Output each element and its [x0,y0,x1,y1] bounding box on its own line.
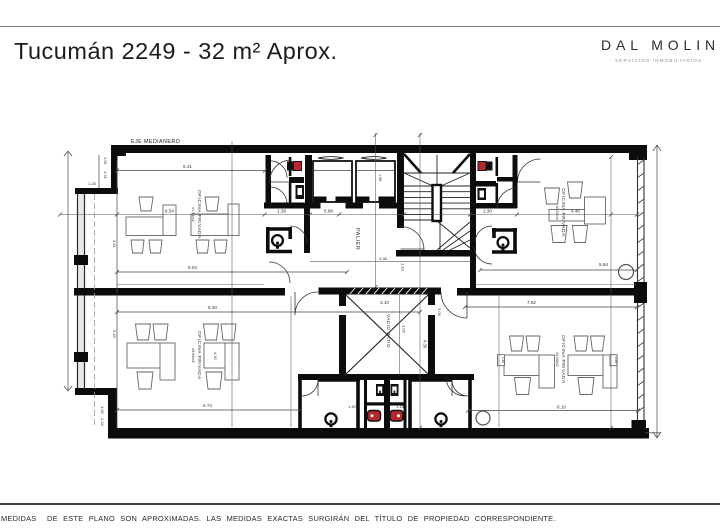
svg-text:4.46: 4.46 [571,209,580,214]
svg-text:3.10: 3.10 [380,300,389,305]
svg-text:43.84m2: 43.84m2 [191,348,195,363]
svg-text:43.05m2: 43.05m2 [555,352,559,367]
svg-text:1.28: 1.28 [88,181,97,186]
svg-text:EJE MEDIANERO: EJE MEDIANERO [131,139,180,145]
svg-text:6.74: 6.74 [203,403,212,408]
svg-text:1.38: 1.38 [277,209,286,214]
svg-text:PALIER: PALIER [354,228,360,250]
svg-text:9.30: 9.30 [208,305,217,310]
svg-text:1.34: 1.34 [100,418,105,427]
svg-text:5.41: 5.41 [183,164,192,169]
svg-text:5.98: 5.98 [324,209,333,214]
svg-text:3.41: 3.41 [112,240,117,249]
svg-text:8.04: 8.04 [188,265,197,270]
svg-text:1.00: 1.00 [100,406,105,415]
svg-text:1.30: 1.30 [483,209,492,214]
svg-text:6.54: 6.54 [165,209,174,214]
svg-text:1.48: 1.48 [501,357,505,363]
svg-text:3.05: 3.05 [402,325,407,334]
svg-text:OFICINA PRIVADA: OFICINA PRIVADA [196,331,202,380]
svg-text:1.51: 1.51 [103,157,108,166]
svg-text:4.30: 4.30 [423,340,428,349]
svg-text:1.98: 1.98 [378,174,382,181]
svg-text:1.31: 1.31 [103,171,108,180]
svg-text:5.94: 5.94 [599,262,608,267]
svg-text:3.38: 3.38 [379,256,388,261]
svg-text:10.34m2: 10.34m2 [555,205,559,220]
svg-text:1.48: 1.48 [614,357,618,363]
svg-text:1.43: 1.43 [396,404,405,409]
svg-text:VACIO PATIO: VACIO PATIO [385,314,391,348]
svg-text:3.43: 3.43 [112,330,117,339]
svg-text:7.52: 7.52 [527,300,536,305]
svg-text:1.10: 1.10 [401,263,406,272]
svg-text:3.09: 3.09 [437,308,442,317]
svg-text:OFICINA PRIVADA: OFICINA PRIVADA [560,188,566,237]
svg-text:OFICINA PRIVADA: OFICINA PRIVADA [560,335,566,384]
svg-text:6.10: 6.10 [557,405,566,410]
svg-text:4.30: 4.30 [213,352,218,361]
svg-text:1.40: 1.40 [348,404,357,409]
